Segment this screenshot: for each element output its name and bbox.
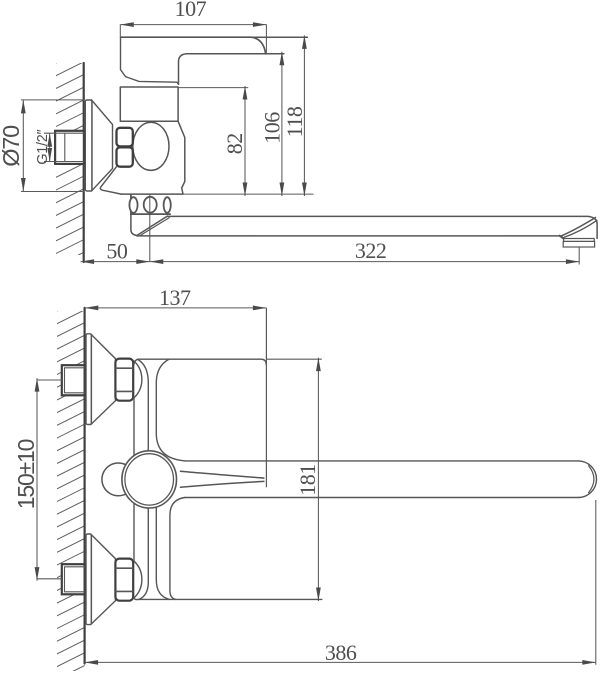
svg-text:107: 107 — [175, 0, 207, 21]
svg-text:106: 106 — [259, 112, 284, 144]
svg-text:322: 322 — [355, 238, 387, 263]
svg-text:Ø70: Ø70 — [0, 125, 24, 167]
svg-text:82: 82 — [222, 133, 247, 154]
svg-text:118: 118 — [282, 106, 307, 137]
svg-text:150±10: 150±10 — [13, 439, 39, 509]
svg-text:181: 181 — [295, 464, 320, 496]
svg-text:50: 50 — [106, 239, 128, 264]
svg-text:137: 137 — [159, 285, 191, 310]
svg-text:G1/2″: G1/2″ — [35, 130, 51, 165]
svg-text:386: 386 — [325, 640, 357, 665]
